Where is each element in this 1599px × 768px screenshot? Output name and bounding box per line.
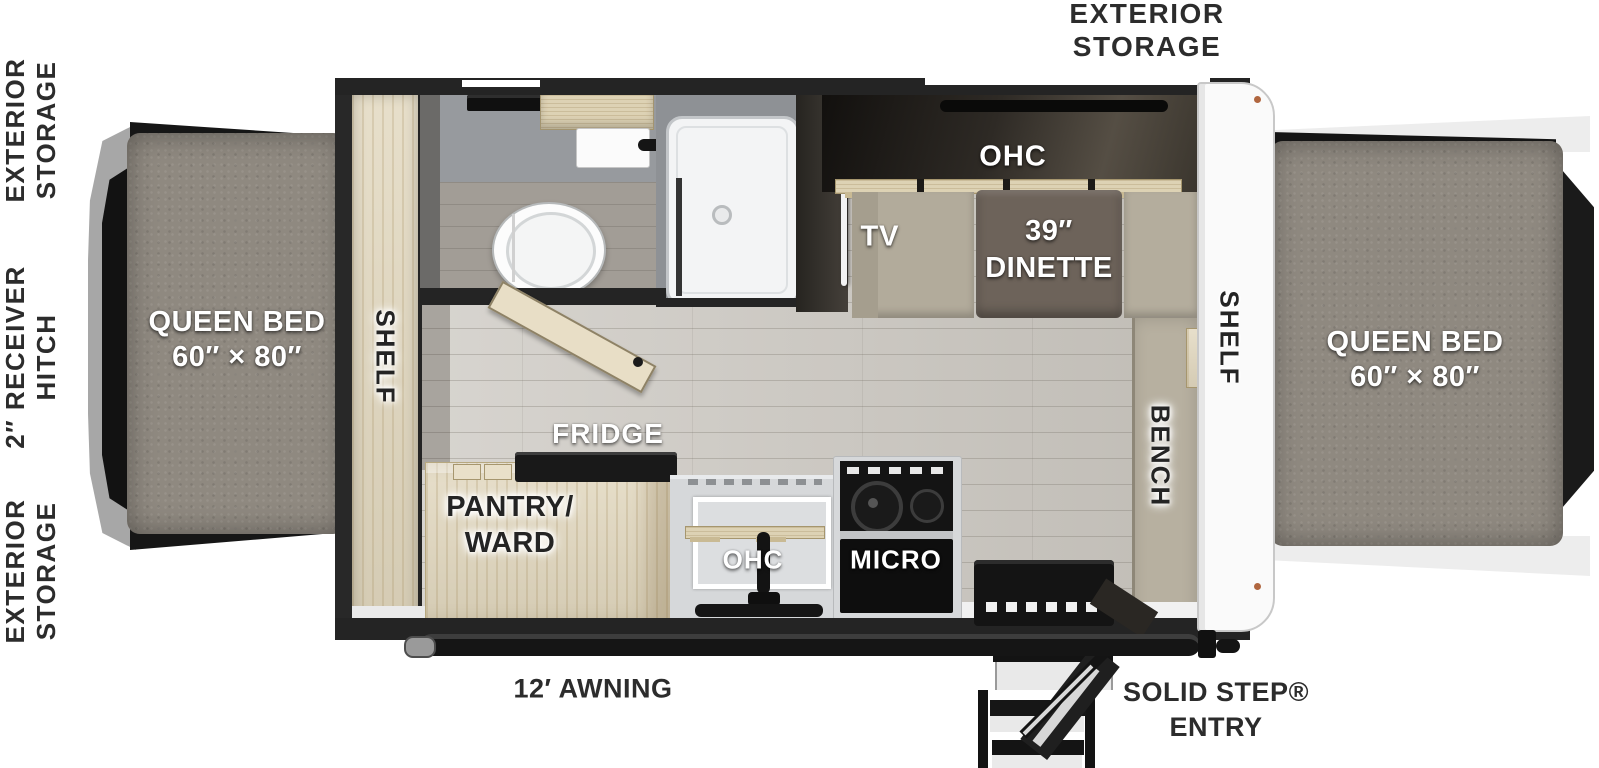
shower-bottom-wall [656,298,800,307]
burner-small [910,489,944,523]
range-divider [840,531,953,539]
wall-shadow-column [422,298,450,470]
awning-bracket [1198,630,1216,658]
floorplan-canvas: EXTERIOR STORAGE EXTERIOR STORAGE 2″ REC… [0,0,1599,768]
top-wall-storage-door [925,78,1210,85]
pantry-tab [453,464,481,480]
label-tv: TV [860,221,899,254]
toilet-seat [506,212,596,290]
label-shelf-right: SHELF [1214,290,1245,385]
label-queen-bed-right: QUEEN BED 60″ × 80″ [1327,325,1504,395]
cooktop-knobs [847,467,947,474]
label-exterior-storage-left-top: EXTERIOR STORAGE [0,58,62,203]
shower-pan-inner [676,126,788,294]
panel-screw [1254,583,1261,590]
dinette-wall-vent [940,100,1168,112]
shower-door-track [676,178,682,296]
label-pantry: PANTRY/ WARD [446,489,574,561]
overhead-cabinet-bath [540,90,654,130]
awning-bar [420,634,1200,656]
burner-large-center [868,498,878,508]
roof-vent [467,95,545,111]
rail-notch [917,179,924,193]
shower-drain [712,205,732,225]
rail-tab [690,537,720,542]
label-awning: 12′ AWNING [514,674,673,705]
dinette-bench-left-pad [852,192,878,318]
bath-door-handle [633,357,643,367]
step-well-treads [986,602,1102,612]
bathroom-left-wall [420,94,440,305]
label-exterior-storage-top: EXTERIOR STORAGE [1069,0,1224,63]
dinette-bench-right [1124,192,1197,318]
label-queen-bed-left: QUEEN BED 60″ × 80″ [149,305,326,375]
pantry-tab [484,464,512,480]
label-receiver-hitch: 2″ RECEIVER HITCH [0,265,62,449]
label-ohc-dinette: OHC [979,141,1046,174]
label-dinette: 39″ DINETTE [985,213,1113,287]
label-shelf-left: SHELF [370,309,401,404]
burner-large [851,481,903,533]
awning-end-cap [404,636,436,658]
label-fridge: FRIDGE [552,418,664,450]
kitchen-sink-edge [695,604,823,617]
label-exterior-storage-left-bottom: EXTERIOR STORAGE [0,499,62,644]
entry-step-well [974,560,1114,626]
step-leg [978,690,988,768]
top-wall-window [462,80,540,87]
fridge [515,452,677,482]
panel-screw [1254,96,1261,103]
label-solid-step-entry: SOLID STEP® ENTRY [1123,675,1309,745]
label-ohc-kitchen: OHC [723,545,784,576]
label-micro: MICRO [850,545,942,576]
toilet-tank-line [512,214,515,282]
step-tread-light [992,755,1082,768]
counter-vent-ticks [688,479,822,485]
label-bench: BENCH [1145,405,1176,507]
awning-stub [1216,639,1240,653]
